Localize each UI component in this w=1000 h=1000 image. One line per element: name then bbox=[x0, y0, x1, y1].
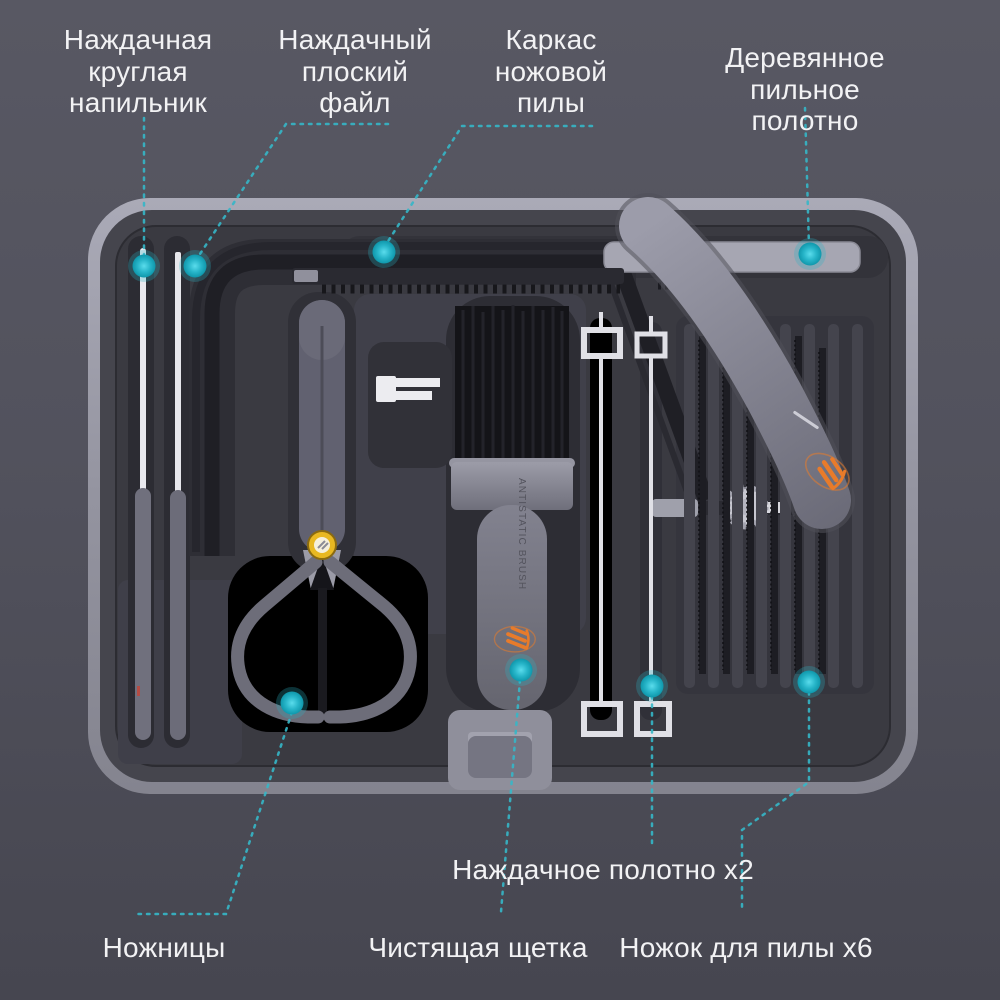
case-latch-front bbox=[448, 710, 552, 790]
label-scissors: Ножницы bbox=[103, 932, 226, 964]
label-sanding-belt: Наждачное полотно x2 bbox=[452, 854, 754, 886]
scissors-pivot bbox=[308, 531, 336, 559]
label-brush: Чистящая щетка bbox=[368, 932, 587, 964]
handle-red-mark bbox=[137, 686, 140, 696]
toolkit-illustration: ANTISTATIC BRUSH bbox=[0, 0, 1000, 1000]
callout-dot bbox=[179, 250, 211, 282]
label-saw-blades: Ножок для пилы x6 bbox=[619, 932, 872, 964]
label-flat-file: Наждачный плоский файл bbox=[278, 24, 431, 119]
spare-clip-pocket bbox=[368, 342, 452, 468]
callout-dot bbox=[505, 654, 537, 686]
callout-dot bbox=[794, 238, 826, 270]
label-saw-frame: Каркас ножовой пилы bbox=[495, 24, 607, 119]
brush-ferrule bbox=[451, 462, 573, 510]
callout-dot bbox=[128, 250, 160, 282]
brush-handle-text: ANTISTATIC BRUSH bbox=[516, 478, 527, 590]
callout-dot bbox=[276, 687, 308, 719]
callout-dot bbox=[368, 236, 400, 268]
callout-dot bbox=[636, 670, 668, 702]
label-round-file: Наждачная круглая напильник bbox=[64, 24, 212, 119]
annotated-product-image: ANTISTATIC BRUSH bbox=[0, 0, 1000, 1000]
label-wood-blade: Деревянное пильное полотно bbox=[708, 42, 903, 137]
callout-dot bbox=[793, 666, 825, 698]
